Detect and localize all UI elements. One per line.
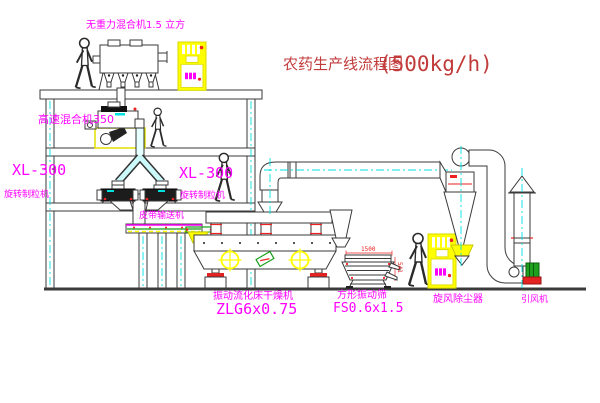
label-fan: 引风机 [521,293,548,305]
dim-screen-length: 1500 [361,246,376,253]
label-belt-conveyor: 皮带输送机 [139,209,184,221]
label-gravity-mixer: 无重力混合机1.5 立方 [86,18,185,31]
worker-figure-floor2 [151,108,167,147]
fluid-bed-dryer [194,212,336,288]
label-cyclone: 旋风除尘器 [433,292,483,305]
label-granulator-right-model: XL-300 [179,164,233,182]
label-fluid-bed-dryer-model: ZLG6x0.75 [216,300,297,318]
drawing-canvas: 无重力混合机1.5 立方 农药生产线流程图 (500kg/h) 高速混合机350… [0,0,600,403]
label-granulator-left-name: 旋转制粒机 [4,188,49,200]
cad-flow-diagram: 无重力混合机1.5 立方 农药生产线流程图 (500kg/h) 高速混合机350… [0,0,600,403]
gravity-free-mixer [93,40,167,112]
control-cabinet-ground [428,234,456,288]
label-granulator-left-model: XL-300 [12,161,66,179]
label-vibrating-screen-model: FS0.6x1.5 [333,301,403,316]
dim-screen-height: 541 [396,262,403,273]
label-vibrating-screen: 方形振动筛 [337,288,387,301]
label-granulator-right-name: 旋转制粒机 [180,189,225,201]
worker-figure-ground [409,234,430,287]
square-vibrating-screen [342,251,400,289]
label-high-speed-mixer: 高速混合机350 [38,112,114,126]
page-title-capacity: (500kg/h) [379,52,493,76]
control-cabinet-roof [178,42,206,90]
dryer-exhaust-duct [258,158,452,216]
